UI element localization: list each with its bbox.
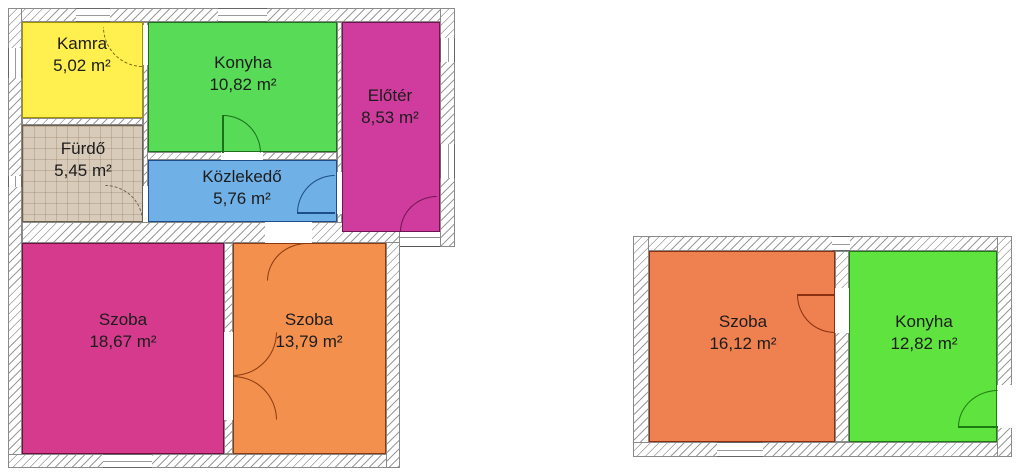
wall-right-bldg-left [633,236,649,457]
window [440,38,455,62]
window [832,236,850,251]
door-leaf-kozlekedo [297,212,335,214]
room-label-kamra: Kamra 5,02 m² [53,33,111,77]
door-leaf-szoba-3 [797,294,835,296]
room-area: 12,82 m² [890,333,957,355]
room-label-szoba-3: Szoba 16,12 m² [709,311,776,355]
wall-bottom [8,454,400,468]
room-name: Előtér [361,85,419,107]
room-name: Konyha [890,311,957,333]
window [440,144,455,178]
room-label-konyha: Konyha 10,82 m² [209,52,276,96]
door-opening-double [224,332,233,420]
room-area: 5,45 m² [54,160,112,182]
floorplan-canvas: Kamra 5,02 m² Konyha 10,82 m² Előtér 8,5… [0,0,1024,476]
room-area: 10,82 m² [209,74,276,96]
room-label-eloter: Előtér 8,53 m² [361,85,419,129]
door-opening-szoba-2 [265,222,312,243]
door-leaf-konyha [222,115,224,153]
wall-right-bldg-bottom [633,442,1012,457]
room-area: 16,12 m² [709,333,776,355]
door-opening-szoba-3 [835,288,849,333]
room-area: 5,02 m² [53,55,111,77]
room-area: 13,79 m² [275,331,342,353]
room-area: 5,76 m² [202,188,281,210]
room-name: Szoba [89,309,156,331]
room-name: Szoba [275,309,342,331]
room-label-szoba-2: Szoba 13,79 m² [275,309,342,353]
wall-szoba-konyha-divider [835,251,849,442]
room-area: 8,53 m² [361,107,419,129]
door-opening-konyha-2 [997,385,1012,428]
window [717,442,763,457]
room-name: Kamra [53,33,111,55]
window [76,8,110,22]
window [218,8,267,22]
room-label-kozlekedo: Közlekedő 5,76 m² [202,166,281,210]
window [8,176,22,187]
room-name: Konyha [209,52,276,74]
wall-right-bldg-top [633,236,1012,251]
room-label-furdo: Fürdő 5,45 m² [54,138,112,182]
room-label-konyha-2: Konyha 12,82 m² [890,311,957,355]
door-leaf-konyha-2 [958,426,998,428]
wall-right-lower [386,240,400,468]
room-name: Szoba [709,311,776,333]
room-label-szoba-1: Szoba 18,67 m² [89,309,156,353]
window [8,48,22,78]
room-name: Közlekedő [202,166,281,188]
room-name: Fürdő [54,138,112,160]
door-opening-konyha [221,152,263,160]
window [103,454,152,468]
wall-kamra-furdo [22,118,143,125]
room-area: 18,67 m² [89,331,156,353]
entrance-door-opening [400,230,440,247]
